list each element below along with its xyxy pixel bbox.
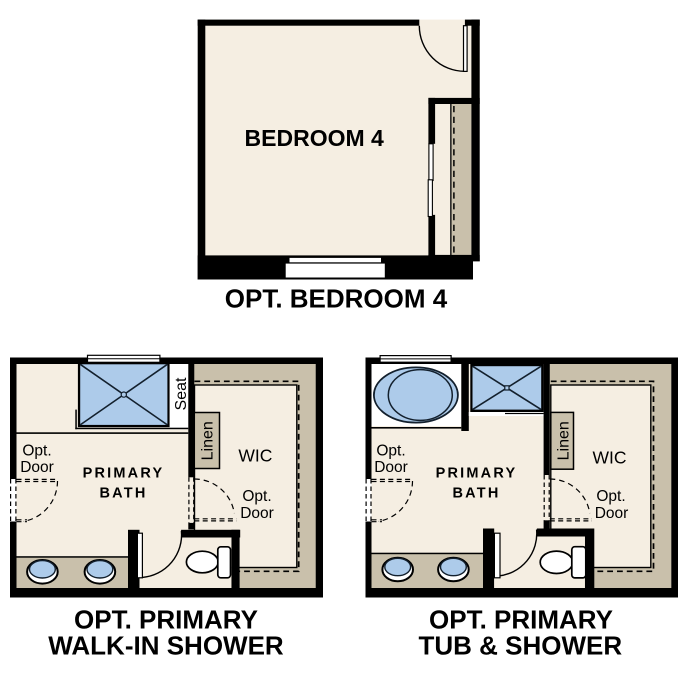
svg-text:TUB & SHOWER: TUB & SHOWER <box>418 631 622 661</box>
svg-text:Seat: Seat <box>173 377 190 410</box>
svg-text:Opt.: Opt. <box>22 442 51 459</box>
svg-text:Door: Door <box>595 505 629 522</box>
svg-text:Opt.: Opt. <box>242 488 271 505</box>
svg-text:WIC: WIC <box>592 448 626 468</box>
svg-text:BATH: BATH <box>100 485 148 501</box>
svg-text:PRIMARY: PRIMARY <box>83 465 165 481</box>
svg-text:WIC: WIC <box>238 446 272 466</box>
svg-text:Opt.: Opt. <box>596 488 625 505</box>
svg-text:OPT. BEDROOM 4: OPT. BEDROOM 4 <box>225 283 448 313</box>
svg-text:Door: Door <box>374 459 408 476</box>
svg-text:BATH: BATH <box>453 485 501 501</box>
svg-text:Opt.: Opt. <box>376 442 405 459</box>
svg-text:Door: Door <box>20 459 54 476</box>
svg-text:BEDROOM 4: BEDROOM 4 <box>245 125 385 151</box>
svg-text:WALK-IN SHOWER: WALK-IN SHOWER <box>48 631 284 661</box>
svg-text:PRIMARY: PRIMARY <box>436 465 518 481</box>
svg-text:Door: Door <box>240 505 274 522</box>
svg-text:Linen: Linen <box>556 421 573 460</box>
svg-text:Linen: Linen <box>200 421 217 460</box>
